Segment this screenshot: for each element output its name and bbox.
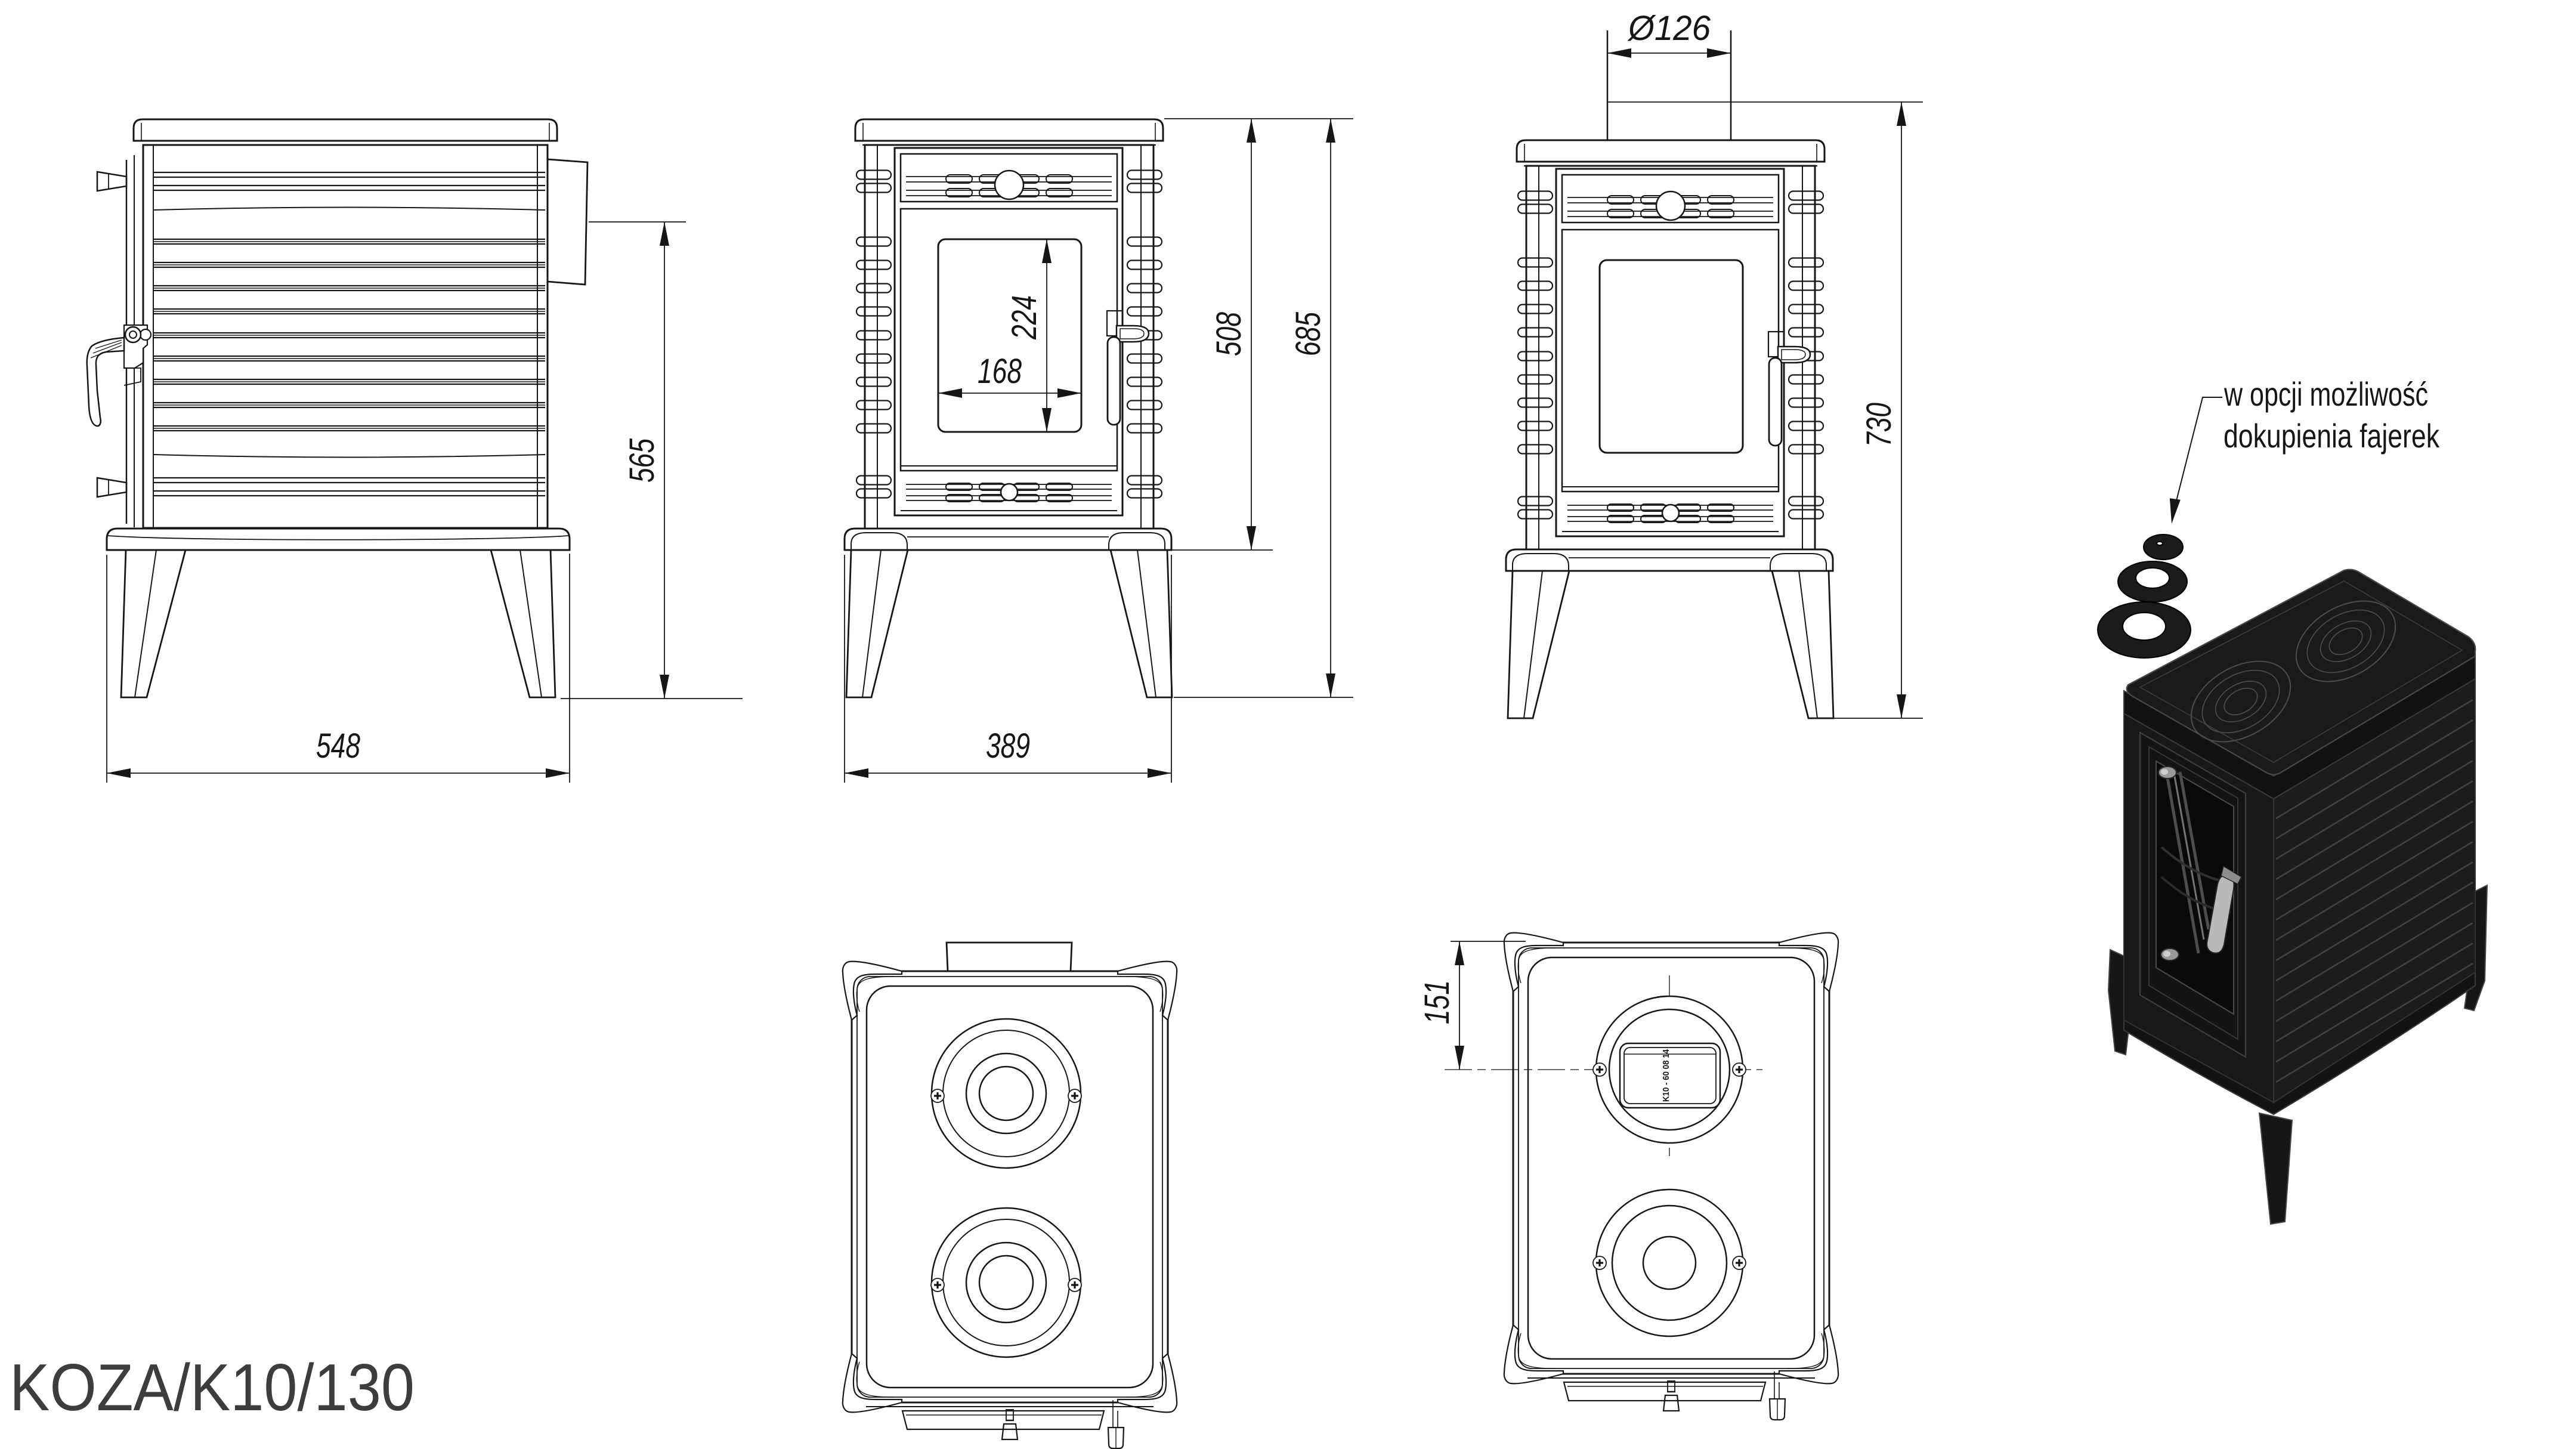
svg-text:508: 508 xyxy=(1210,312,1248,356)
svg-text:K10 - 60 08 14: K10 - 60 08 14 xyxy=(1661,1049,1671,1102)
svg-text:151: 151 xyxy=(1418,980,1456,1024)
svg-text:565: 565 xyxy=(623,438,661,483)
svg-text:224: 224 xyxy=(1005,295,1044,340)
svg-text:Ø126: Ø126 xyxy=(1627,9,1711,48)
svg-text:168: 168 xyxy=(978,352,1022,391)
svg-text:w opcji możliwość: w opcji możliwość xyxy=(2224,375,2428,413)
svg-text:KOZA/K10/130: KOZA/K10/130 xyxy=(10,1351,415,1425)
svg-text:685: 685 xyxy=(1289,311,1328,356)
svg-text:389: 389 xyxy=(986,727,1030,765)
svg-text:730: 730 xyxy=(1860,403,1898,447)
svg-text:dokupienia fajerek: dokupienia fajerek xyxy=(2224,417,2440,455)
svg-text:548: 548 xyxy=(316,727,360,765)
